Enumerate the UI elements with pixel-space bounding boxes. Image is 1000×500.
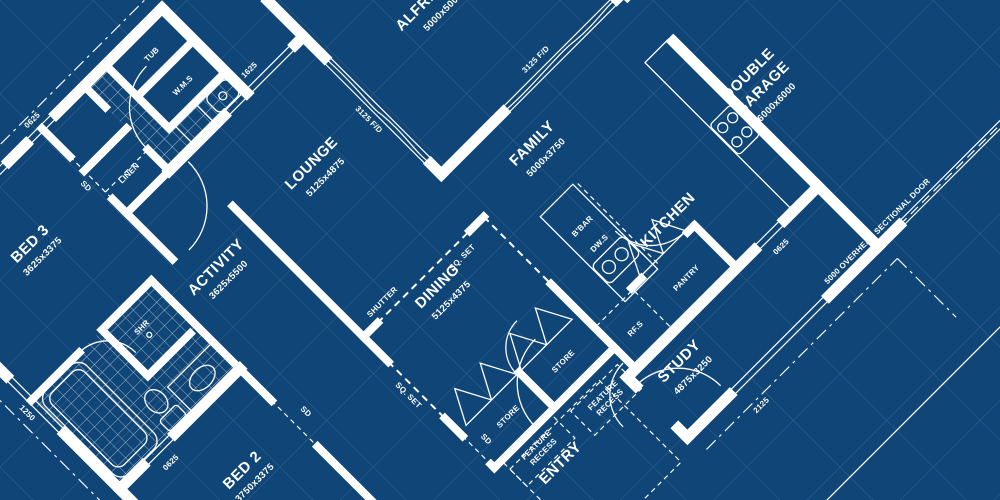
blueprint-page: BED 3 3625x3375 ACTIVITY 3625x5500 BED 2… bbox=[0, 0, 1000, 500]
blueprint-floor-plan: BED 3 3625x3375 ACTIVITY 3625x5500 BED 2… bbox=[0, 0, 1000, 500]
